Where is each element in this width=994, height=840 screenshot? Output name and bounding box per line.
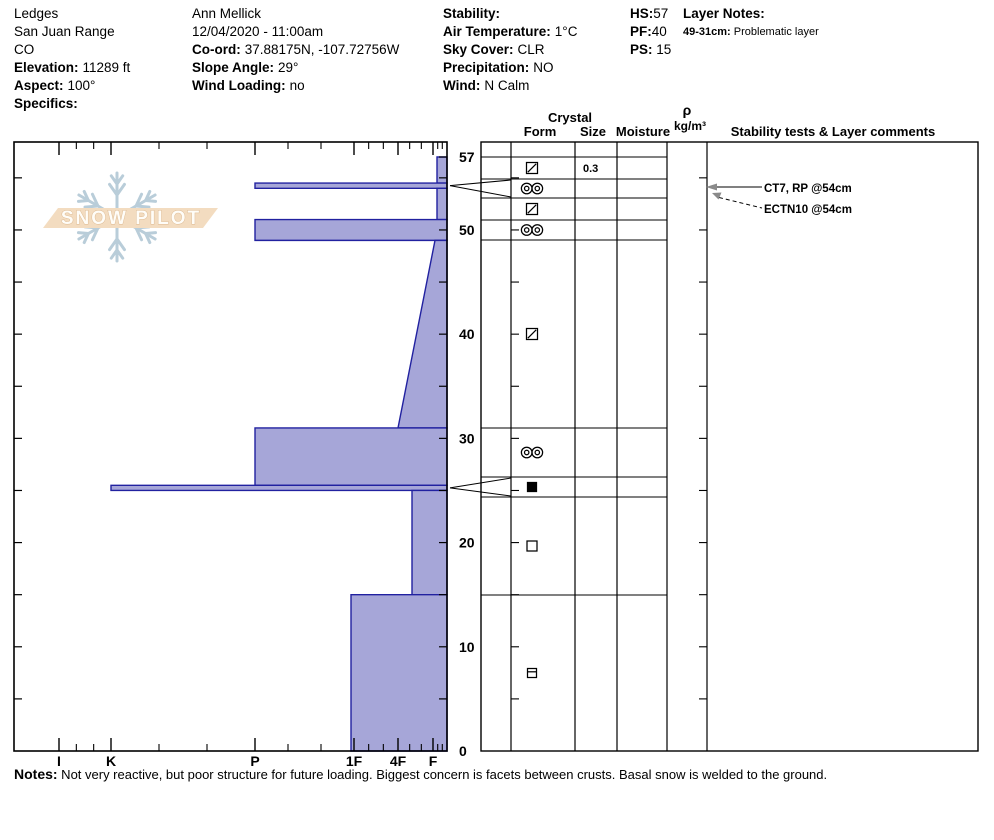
grain-form-symbol-double-circle	[535, 228, 539, 232]
stability-test-ct: CT7, RP @54cm	[764, 183, 852, 195]
snowflake-icon	[85, 206, 98, 207]
grain-form-symbol-double-circle	[525, 450, 529, 454]
notes-text: Not very reactive, but poor structure fo…	[58, 767, 828, 782]
ect-arrowhead-icon	[712, 193, 722, 200]
grain-form-symbol-double-circle	[532, 183, 543, 194]
snowflake-icon	[78, 201, 88, 202]
grain-form-symbol-square-slash	[528, 205, 536, 213]
ct-arrowhead-icon	[706, 184, 717, 191]
hardness-layer-bar-8	[351, 595, 447, 751]
hardness-layer-bar-5	[255, 428, 447, 485]
snowpilot-logo: SNOW PILOT	[43, 173, 218, 261]
grain-form-symbol-square-slash	[528, 330, 536, 338]
hardness-layer-bar-1	[255, 183, 447, 188]
hardness-layer-bar-3	[255, 220, 447, 241]
grain-form-symbol-double-circle	[525, 228, 529, 232]
comments-header: Stability tests & Layer comments	[731, 124, 935, 139]
hardness-layer-bar-0	[437, 157, 447, 183]
snowflake-icon	[136, 206, 149, 207]
stability-test-ect: ECTN10 @54cm	[764, 204, 852, 216]
grain-form-symbol-double-circle	[532, 225, 543, 236]
depth-axis-label: 40	[459, 326, 475, 342]
grain-form-symbol-double-circle	[535, 450, 539, 454]
grain-size-value: 0.3	[583, 163, 598, 175]
pit-notes: Notes: Not very reactive, but poor struc…	[14, 766, 980, 782]
depth-axis-label: 0	[459, 743, 467, 759]
grain-form-symbol-double-circle	[535, 186, 539, 190]
grain-form-symbol-filled-square	[528, 483, 537, 492]
hardness-layer-bar-2	[437, 188, 447, 219]
moisture-header: Moisture	[616, 124, 670, 139]
depth-axis-label: 57	[459, 149, 475, 165]
crystal-header: Crystal	[548, 110, 592, 125]
depth-axis-label: 30	[459, 430, 475, 446]
grain-form-symbol-double-circle	[525, 186, 529, 190]
grain-form-symbol-open-square	[527, 541, 537, 551]
depth-axis-label: 10	[459, 639, 475, 655]
size-header: Size	[580, 124, 606, 139]
grain-form-symbol-square-hbar	[528, 669, 537, 678]
grain-form-symbol-double-circle	[521, 447, 532, 458]
hardness-layer-bar-6	[111, 485, 447, 490]
density-header: ρ	[683, 102, 692, 118]
grain-form-symbol-double-circle	[521, 225, 532, 236]
layer-table-frame	[481, 142, 978, 751]
snowflake-icon	[146, 233, 156, 234]
depth-axis-label: 20	[459, 535, 475, 551]
notes-label: Notes:	[14, 766, 58, 782]
snow-profile-graph: SNOW PILOTIKP1F4FF5750403020100CrystalFo…	[0, 0, 994, 840]
grain-form-symbol-square-slash	[528, 164, 536, 172]
density-unit-header: kg/m³	[674, 119, 706, 133]
depth-axis-label: 50	[459, 222, 475, 238]
grain-form-symbol-double-circle	[521, 183, 532, 194]
logo-text: SNOW PILOT	[61, 208, 201, 229]
form-header: Form	[524, 124, 557, 139]
ect-arrow-line	[719, 198, 762, 209]
grain-form-symbol-double-circle	[532, 447, 543, 458]
